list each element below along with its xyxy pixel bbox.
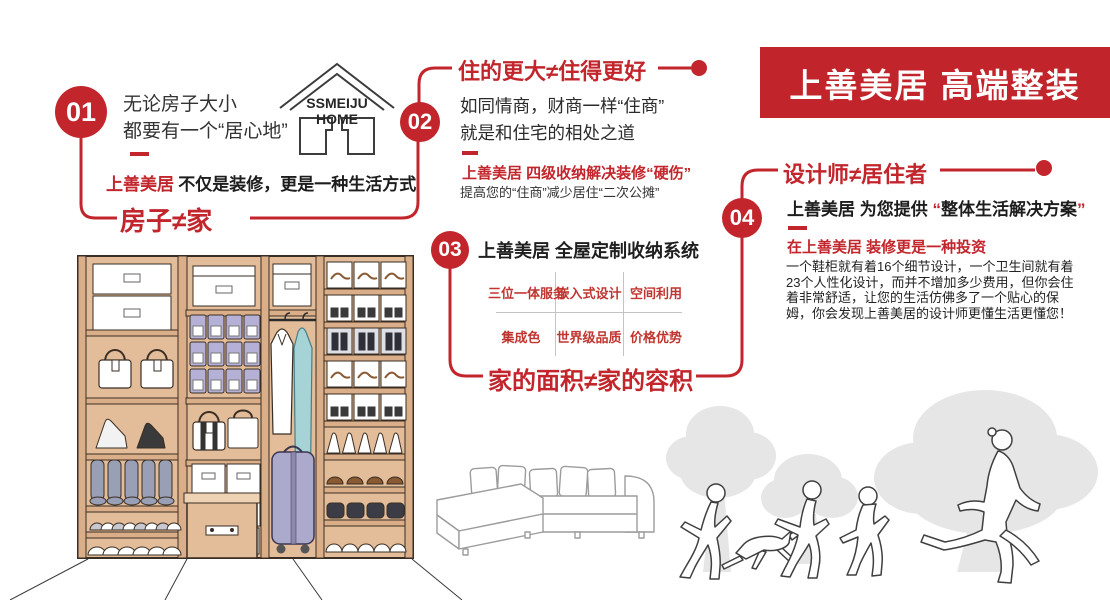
section04-red-line: 在上善美居 装修更是一种投资 [787, 236, 986, 257]
quote-close: ” [1077, 200, 1086, 219]
logo-text-line1: SSMEIJU [306, 95, 367, 111]
step-circle-04: 04 [722, 198, 762, 238]
park-scene-illustration [640, 372, 1110, 600]
connector-02-to-header [419, 68, 452, 104]
section04-header: 设计师≠居住者 [783, 157, 927, 189]
section01-dash [130, 152, 149, 156]
connector-slogan-to-04 [696, 236, 742, 376]
feature-table: 三位一体服务 嵌入式设计 空间利用 集成色 世界级品质 价格优势 [488, 268, 688, 358]
step-circle-01: 01 [55, 86, 107, 138]
table-divider-h [496, 312, 682, 313]
table-cell: 世界级品质 [556, 327, 622, 346]
quote-open: “ [932, 200, 941, 219]
section04-lead-main: 整体生活解决方案 [941, 200, 1077, 219]
section01-intro: 无论房子大小 都要有一个“居心地” [123, 91, 288, 145]
slogan-area-not-volume: 家的面积≠家的容积 [488, 361, 693, 396]
section04-paragraph: 一个鞋柜就有着16个细节设计，一个卫生间就有着23个人性化设计，而并不增加多少费… [786, 259, 1079, 321]
table-cell: 空间利用 [623, 283, 689, 302]
section02-red-line: 上善美居 四级收纳解决装修“硬伤” [462, 162, 691, 183]
table-cell: 三位一体服务 [488, 283, 554, 302]
section04-dash [788, 226, 807, 230]
brand-name: 上善美居 [106, 175, 174, 194]
section02-line2: 就是和住宅的相处之道 [460, 120, 664, 147]
section04-lead-pre: 上善美居 为您提供 [787, 200, 932, 219]
poster-canvas: { "colors": { "accent": "#C2262C", "bann… [0, 0, 1110, 600]
banner-title: 上善美居 高端整装 [789, 59, 1080, 107]
step-circle-02: 02 [400, 102, 440, 142]
section02-body: 如同情商，财商一样“住商” 就是和住宅的相处之道 [460, 93, 664, 147]
table-cell: 价格优势 [623, 327, 689, 346]
table-cell: 集成色 [488, 327, 554, 346]
sofa-illustration [425, 438, 680, 563]
section03-title: 上善美居 全屋定制收纳系统 [478, 237, 699, 263]
slogan-house-not-home: 房子≠家 [120, 201, 212, 238]
brand-banner: 上善美居 高端整装 [760, 47, 1110, 118]
section01-line2: 都要有一个“居心地” [123, 118, 288, 145]
header-end-dot-04 [1036, 160, 1052, 176]
table-cell: 嵌入式设计 [556, 283, 622, 302]
tree-silhouettes [666, 390, 1098, 572]
section01-line1: 无论房子大小 [123, 91, 288, 118]
section02-dash [462, 151, 478, 155]
section02-black-line: 提高您的“住商”减少居住“二次公摊” [460, 182, 659, 201]
section04-lead: 上善美居 为您提供 “整体生活解决方案” [787, 195, 1085, 220]
connector-04-to-header [742, 170, 778, 200]
section02-line1: 如同情商，财商一样“住商” [460, 93, 664, 120]
house-logo: SSMEIJU HOME [278, 62, 396, 158]
section02-header: 住的更大≠住得更好 [458, 54, 646, 86]
step-circle-03: 03 [431, 231, 469, 269]
section01-sub-rest: 不仅是装修，更是一种生活方式 [178, 175, 416, 194]
logo-text-line2: HOME [316, 111, 358, 127]
tree-right [874, 390, 1098, 572]
section01-subline: 上善美居 不仅是装修，更是一种生活方式 [106, 170, 416, 195]
header-end-dot-02 [691, 60, 707, 76]
wardrobe-illustration [0, 248, 480, 600]
